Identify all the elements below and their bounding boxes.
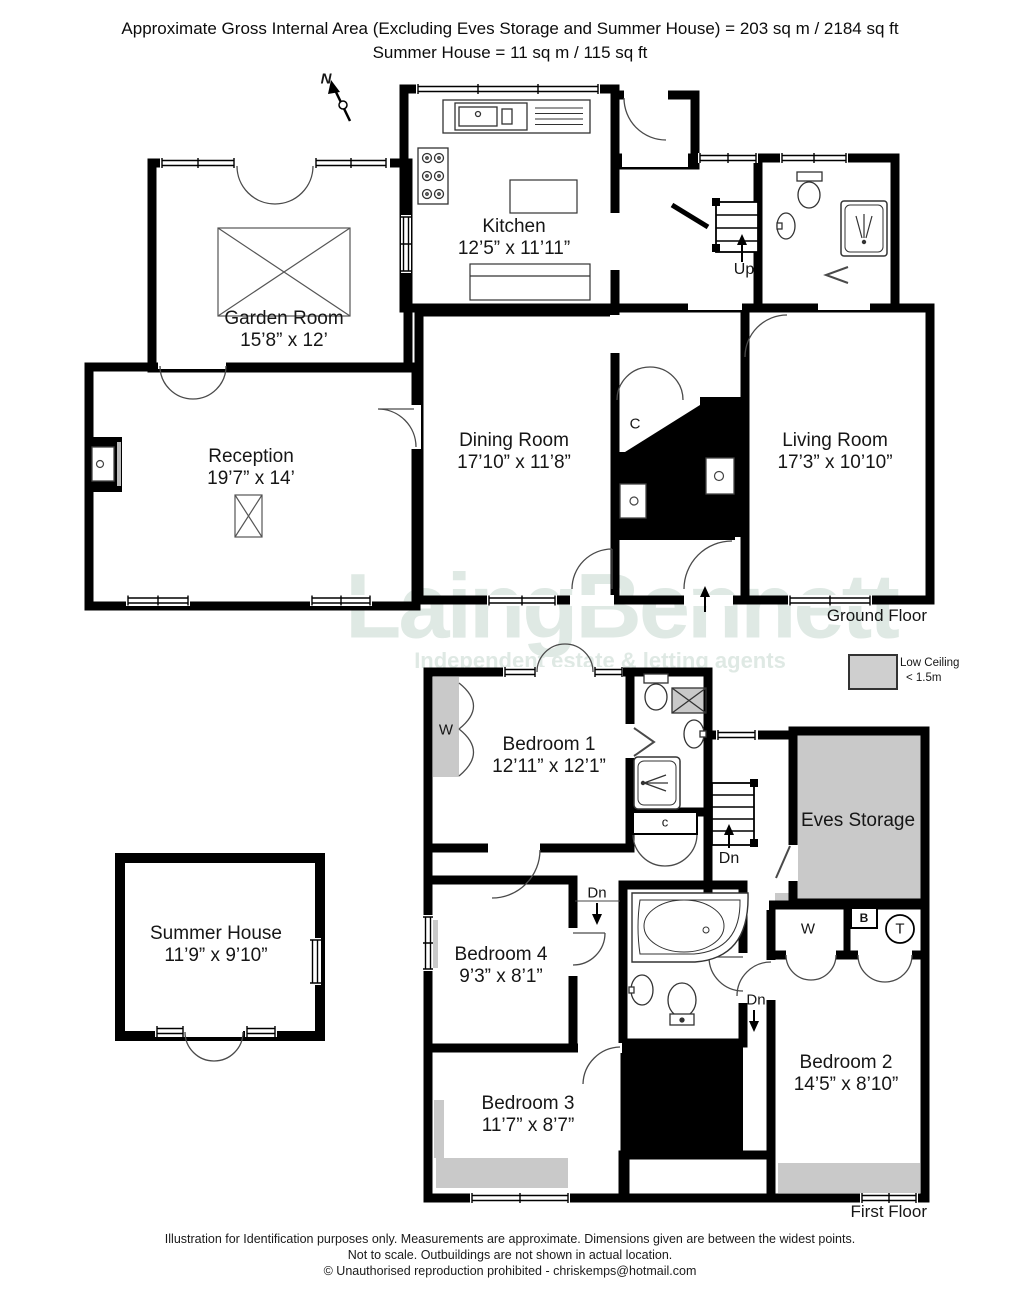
cupboard-label-ground: C	[630, 416, 641, 433]
cupboard-label-first: c	[662, 815, 669, 830]
floorplan-sheet: LaingBennett Independent estate & lettin…	[0, 0, 1020, 1291]
bedroom3-name: Bedroom 3	[482, 1093, 575, 1115]
footer-line-2: Not to scale. Outbuildings are not shown…	[348, 1248, 673, 1262]
living-room-name: Living Room	[782, 430, 888, 452]
dining-room-dims: 17’10” x 11’8”	[457, 452, 571, 474]
wardrobe-label-bed2: W	[801, 921, 815, 938]
north-label: N	[321, 71, 332, 88]
footer-line-1: Illustration for Identification purposes…	[165, 1232, 855, 1246]
kitchen-name: Kitchen	[482, 216, 545, 238]
kitchen-dims: 12’5” x 11’11”	[458, 238, 570, 260]
legend-value: < 1.5m	[906, 672, 941, 684]
up-label: Up	[734, 261, 754, 279]
bedroom4-name: Bedroom 4	[455, 944, 548, 966]
garden-room-name: Garden Room	[224, 308, 343, 330]
footer-line-3: © Unauthorised reproduction prohibited -…	[324, 1264, 697, 1278]
wardrobe-label-bed1: W	[439, 722, 453, 739]
dining-room-name: Dining Room	[459, 430, 569, 452]
dn-label-corridor: Dn	[746, 992, 765, 1009]
summer-house-name: Summer House	[150, 923, 282, 945]
eves-storage-name: Eves Storage	[801, 810, 915, 832]
low-ceiling-swatch	[848, 654, 898, 690]
ground-floor-label: Ground Floor	[827, 606, 927, 626]
header-line-1: Approximate Gross Internal Area (Excludi…	[121, 19, 898, 39]
labels-layer: Approximate Gross Internal Area (Excludi…	[0, 0, 1020, 1291]
bedroom1-dims: 12’11” x 12’1”	[492, 756, 606, 778]
header-line-2: Summer House = 11 sq m / 115 sq ft	[373, 43, 648, 63]
dn-label-hall: Dn	[587, 885, 606, 902]
dn-label-landing: Dn	[719, 850, 739, 868]
first-floor-label: First Floor	[851, 1202, 928, 1222]
bedroom2-dims: 14’5” x 8’10”	[794, 1074, 899, 1096]
bedroom3-dims: 11’7” x 8’7”	[482, 1115, 575, 1137]
reception-name: Reception	[208, 446, 294, 468]
bedroom1-name: Bedroom 1	[503, 734, 596, 756]
summer-house-dims: 11’9” x 9’10”	[164, 945, 267, 967]
bedroom2-name: Bedroom 2	[800, 1052, 893, 1074]
living-room-dims: 17’3” x 10’10”	[777, 452, 892, 474]
bedroom4-dims: 9’3” x 8’1”	[459, 966, 542, 988]
tank-label: T	[895, 921, 904, 938]
legend-title: Low Ceiling	[900, 657, 959, 669]
garden-room-dims: 15’8” x 12’	[240, 330, 328, 352]
reception-dims: 19’7” x 14’	[207, 468, 295, 490]
boiler-label: B	[860, 911, 869, 925]
